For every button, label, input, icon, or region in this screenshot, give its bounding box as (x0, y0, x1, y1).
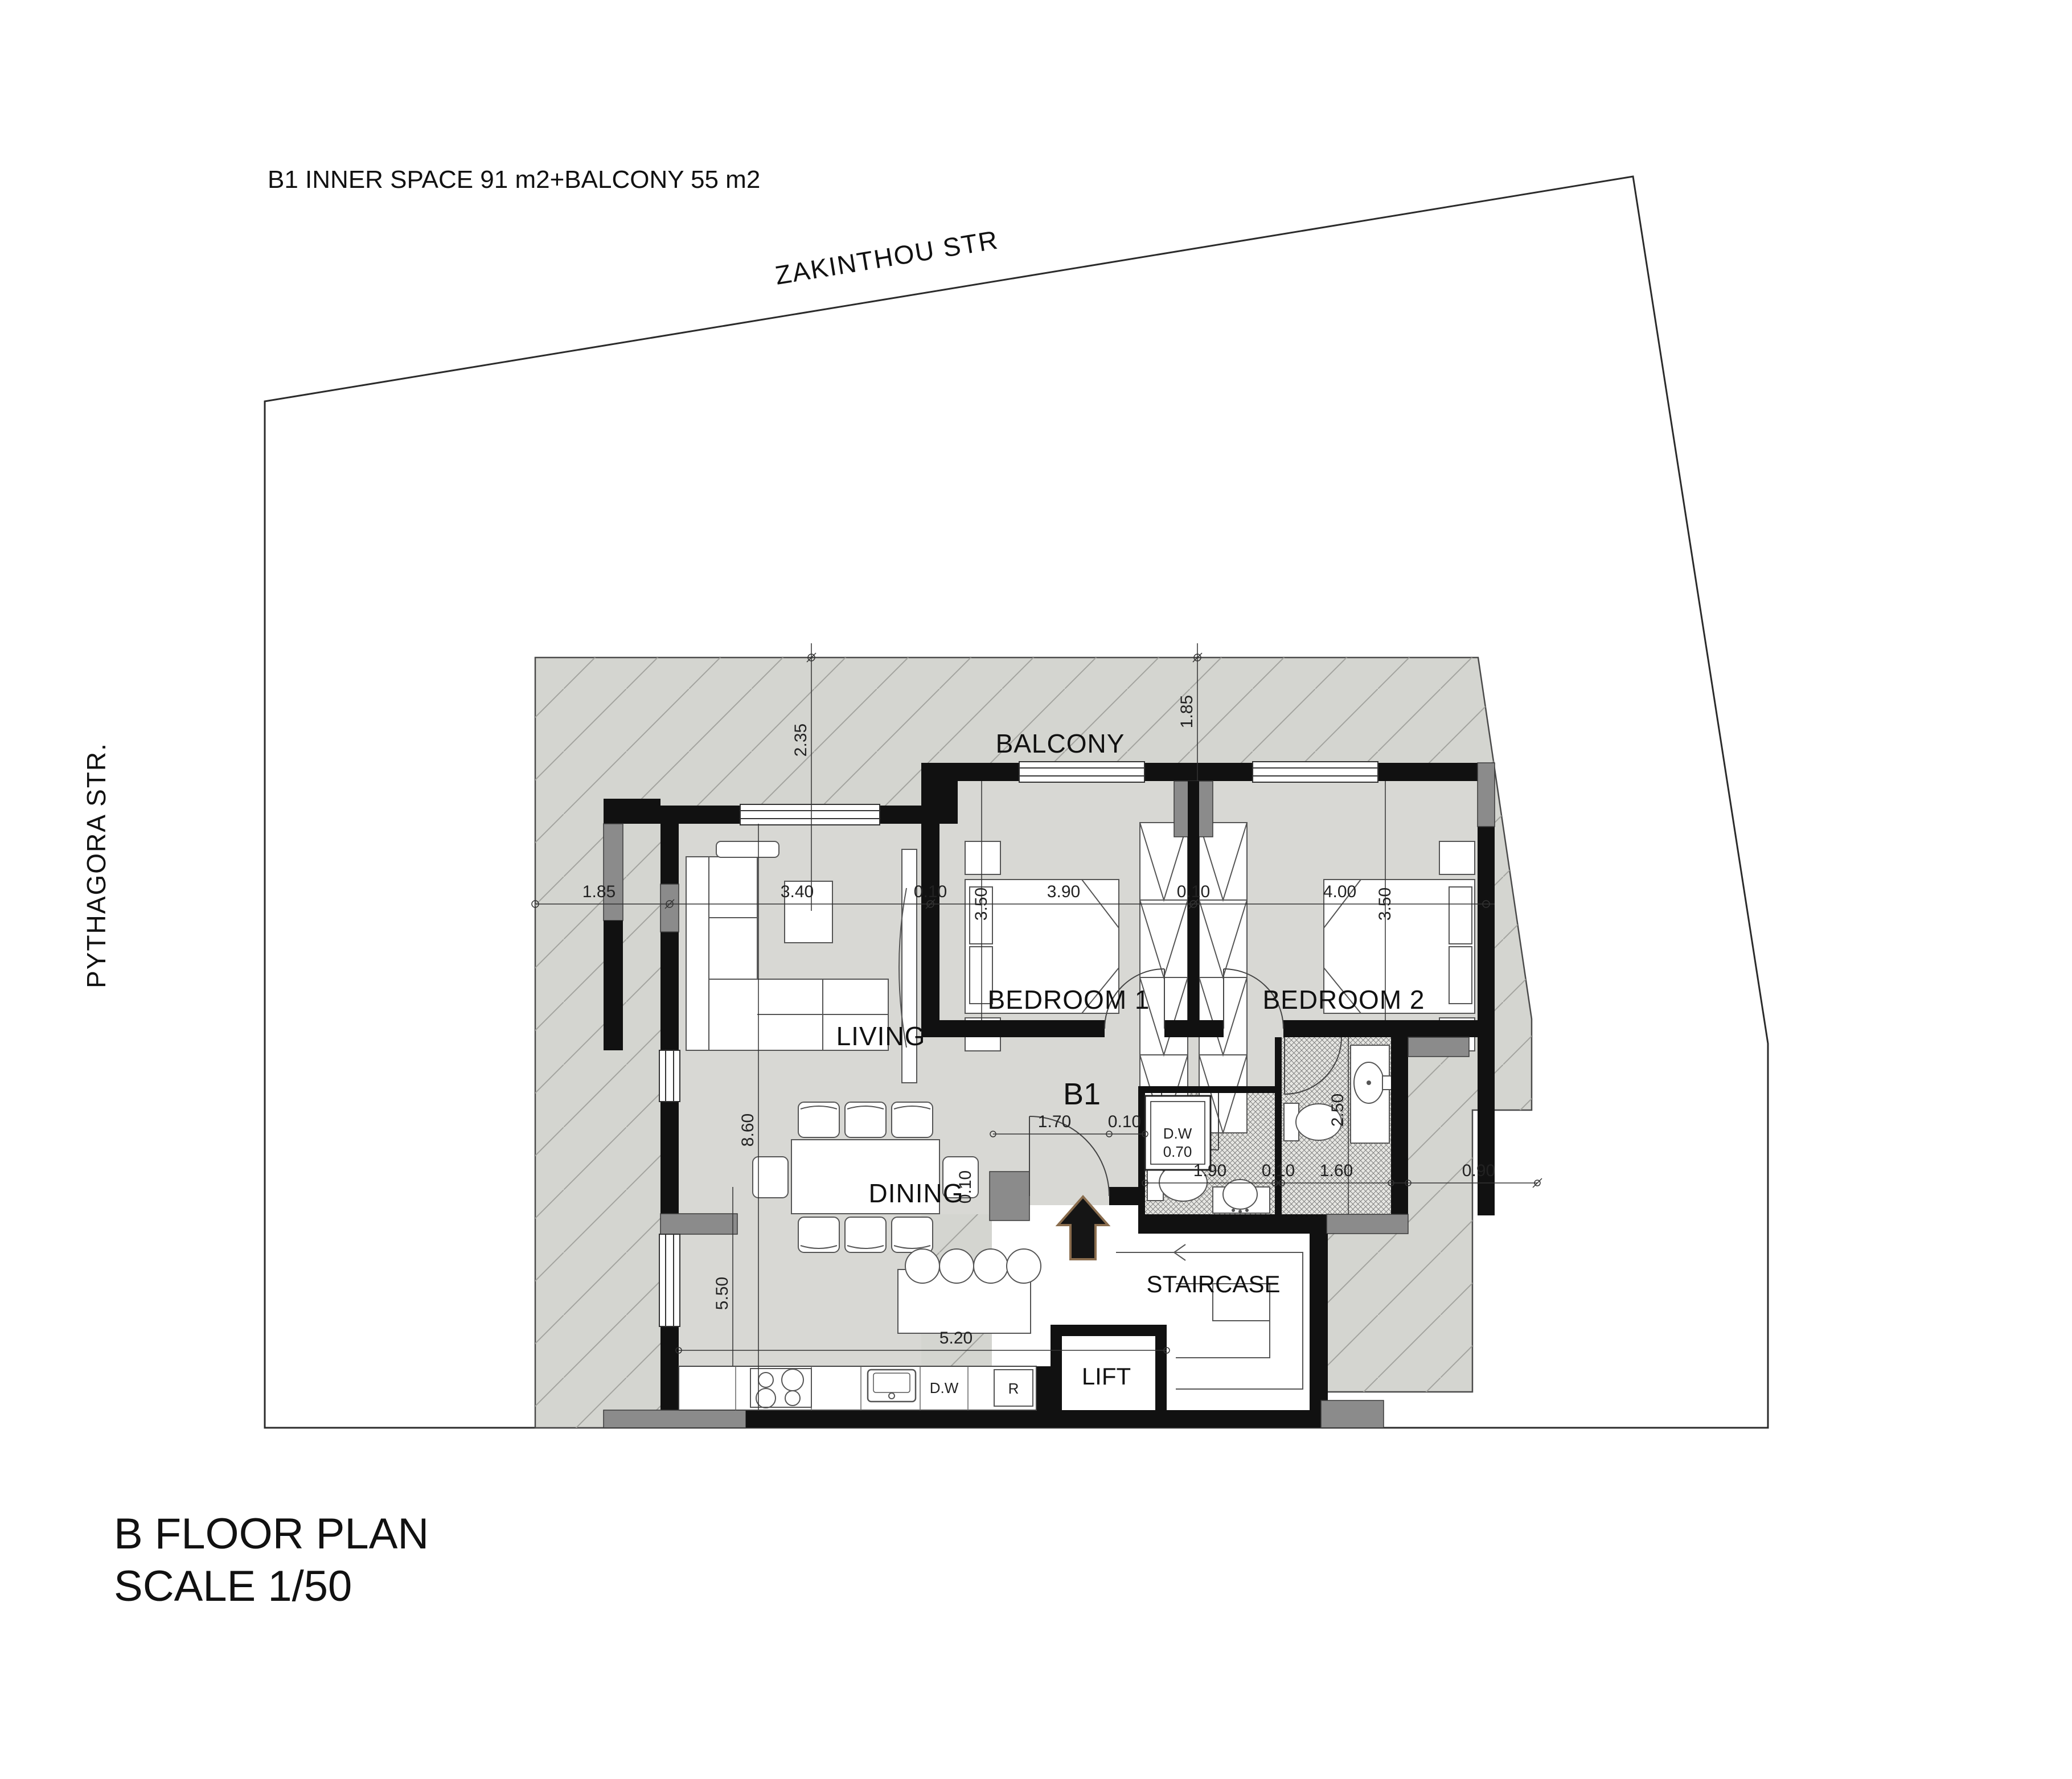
kitchen-counter: D.W R (679, 1366, 1036, 1410)
dim-090: 0.90 (1462, 1161, 1495, 1180)
dim-185-left: 1.85 (582, 882, 616, 901)
kitchen-island (898, 1249, 1041, 1333)
dim-340: 3.40 (781, 882, 814, 901)
label-unit-b1: B1 (1063, 1077, 1101, 1111)
dim-250: 2.50 (1328, 1094, 1347, 1127)
dim-235: 2.35 (791, 724, 810, 757)
dim-400: 4.00 (1323, 882, 1356, 901)
dim-190: 1.90 (1193, 1161, 1226, 1180)
label-balcony: BALCONY (996, 729, 1125, 758)
nightstand (1439, 841, 1475, 874)
kitchen-sink (868, 1370, 916, 1402)
window-west-lower (659, 1234, 680, 1326)
hob (750, 1369, 811, 1408)
dim-010-c: 0.10 (1108, 1112, 1141, 1131)
dim-350-br1: 3.50 (972, 888, 991, 921)
floor-plan-drawing: D.W 0.70 D.W R (0, 0, 2072, 1779)
window-living-top (740, 804, 880, 825)
street-left: PYTHAGORA STR. (81, 742, 111, 988)
dim-010-d: 0.10 (1262, 1161, 1295, 1180)
label-bedroom1: BEDROOM 1 (987, 985, 1150, 1014)
label-lift: LIFT (1082, 1363, 1131, 1390)
street-top: ZAKINTHOU STR (773, 225, 1001, 290)
footer-line2: SCALE 1/50 (114, 1562, 352, 1610)
label-bedroom2: BEDROOM 2 (1262, 985, 1425, 1014)
bar-stool (974, 1249, 1008, 1283)
bar-stool (939, 1249, 974, 1283)
wall-pier (660, 1214, 737, 1234)
dim-390: 3.90 (1047, 882, 1080, 901)
page-title: B1 INNER SPACE 91 m2+BALCONY 55 m2 (268, 166, 760, 194)
window-bedroom2 (1253, 762, 1378, 782)
fridge: R (994, 1370, 1033, 1406)
closet-label: D.W (1163, 1125, 1192, 1142)
label-dining: DINING (869, 1178, 964, 1208)
dim-010-b: 0.10 (1177, 882, 1210, 901)
fridge-label: R (1008, 1380, 1019, 1397)
dim-160: 1.60 (1320, 1161, 1353, 1180)
window-bedroom1 (1019, 762, 1144, 782)
dw-closet: D.W 0.70 (1145, 1096, 1211, 1170)
footer-line1: B FLOOR PLAN (114, 1510, 429, 1558)
dim-010-a: 0.10 (914, 882, 947, 901)
dim-350-br2: 3.50 (1376, 888, 1394, 921)
nightstand (965, 841, 1000, 874)
dim-550: 5.50 (713, 1277, 732, 1310)
dim-185-bed: 1.85 (1177, 695, 1196, 728)
bar-stool (905, 1249, 939, 1283)
dim-170: 1.70 (1038, 1112, 1071, 1131)
label-staircase: STAIRCASE (1147, 1271, 1281, 1297)
vanity-bathroom2 (1351, 1045, 1392, 1143)
dishwasher-label: D.W (930, 1379, 959, 1396)
window-west-upper (659, 1050, 680, 1102)
closet-size: 0.70 (1163, 1143, 1192, 1160)
label-living: LIVING (836, 1021, 926, 1051)
bar-stool (1007, 1249, 1041, 1283)
floor-plan-page: D.W 0.70 D.W R (0, 0, 2072, 1779)
dim-520: 5.20 (939, 1329, 973, 1347)
dim-860: 8.60 (738, 1114, 757, 1147)
